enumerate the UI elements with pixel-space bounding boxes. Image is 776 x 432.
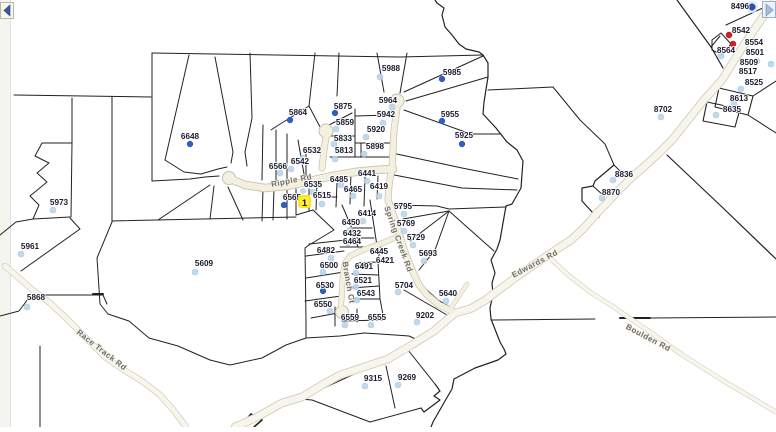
svg-text:6555: 6555 [368, 313, 387, 322]
svg-text:8501: 8501 [746, 48, 765, 57]
svg-text:5795: 5795 [394, 202, 413, 211]
svg-text:8702: 8702 [654, 105, 673, 114]
svg-text:6566: 6566 [269, 162, 288, 171]
svg-text:6500: 6500 [320, 261, 339, 270]
svg-text:8554: 8554 [745, 38, 764, 47]
svg-text:5973: 5973 [50, 198, 69, 207]
svg-text:5693: 5693 [419, 249, 438, 258]
svg-text:6482: 6482 [317, 246, 336, 255]
svg-text:6441: 6441 [358, 169, 377, 178]
svg-text:5961: 5961 [21, 242, 40, 251]
svg-text:5925: 5925 [455, 131, 474, 140]
svg-text:5640: 5640 [439, 289, 458, 298]
svg-text:5955: 5955 [441, 110, 460, 119]
svg-text:8509: 8509 [740, 58, 759, 67]
svg-text:6530: 6530 [316, 281, 335, 290]
svg-text:5920: 5920 [367, 125, 386, 134]
svg-text:5898: 5898 [366, 142, 385, 151]
svg-text:8542: 8542 [732, 26, 751, 35]
svg-text:5985: 5985 [443, 68, 462, 77]
svg-text:8496: 8496 [731, 2, 750, 11]
svg-text:6445: 6445 [370, 247, 389, 256]
svg-text:6550: 6550 [314, 300, 333, 309]
svg-text:5704: 5704 [395, 281, 414, 290]
svg-text:6419: 6419 [370, 182, 389, 191]
svg-text:5859: 5859 [336, 118, 355, 127]
svg-text:6414: 6414 [358, 209, 377, 218]
svg-text:6515: 6515 [313, 191, 332, 200]
svg-text:8564: 8564 [717, 46, 736, 55]
svg-text:6542: 6542 [291, 157, 310, 166]
svg-text:9202: 9202 [416, 311, 435, 320]
svg-text:6485: 6485 [330, 175, 349, 184]
svg-text:9269: 9269 [398, 373, 417, 382]
svg-text:6464: 6464 [343, 237, 362, 246]
svg-text:5813: 5813 [335, 146, 354, 155]
svg-text:5609: 5609 [195, 259, 214, 268]
svg-text:6521: 6521 [354, 276, 373, 285]
svg-text:5868: 5868 [27, 293, 46, 302]
svg-text:8635: 8635 [723, 105, 742, 114]
svg-text:5988: 5988 [382, 64, 401, 73]
svg-text:5769: 5769 [397, 219, 416, 228]
svg-text:9315: 9315 [364, 374, 383, 383]
svg-text:5875: 5875 [334, 102, 353, 111]
svg-text:6543: 6543 [357, 289, 376, 298]
svg-text:8870: 8870 [602, 188, 621, 197]
svg-text:6491: 6491 [355, 262, 374, 271]
svg-text:6465: 6465 [344, 185, 363, 194]
svg-text:5942: 5942 [377, 110, 396, 119]
svg-text:8525: 8525 [745, 78, 764, 87]
svg-text:5964: 5964 [379, 96, 398, 105]
svg-text:1: 1 [302, 198, 308, 209]
svg-text:8517: 8517 [739, 67, 758, 76]
svg-text:5864: 5864 [289, 108, 308, 117]
svg-text:5833: 5833 [334, 134, 353, 143]
svg-text:6648: 6648 [181, 132, 200, 141]
svg-text:6421: 6421 [376, 256, 395, 265]
svg-text:6559: 6559 [341, 313, 360, 322]
svg-text:6450: 6450 [342, 218, 361, 227]
svg-text:5729: 5729 [407, 233, 426, 242]
svg-text:6535: 6535 [304, 180, 323, 189]
svg-text:8613: 8613 [730, 94, 749, 103]
svg-text:6532: 6532 [303, 146, 322, 155]
svg-text:8836: 8836 [615, 170, 634, 179]
